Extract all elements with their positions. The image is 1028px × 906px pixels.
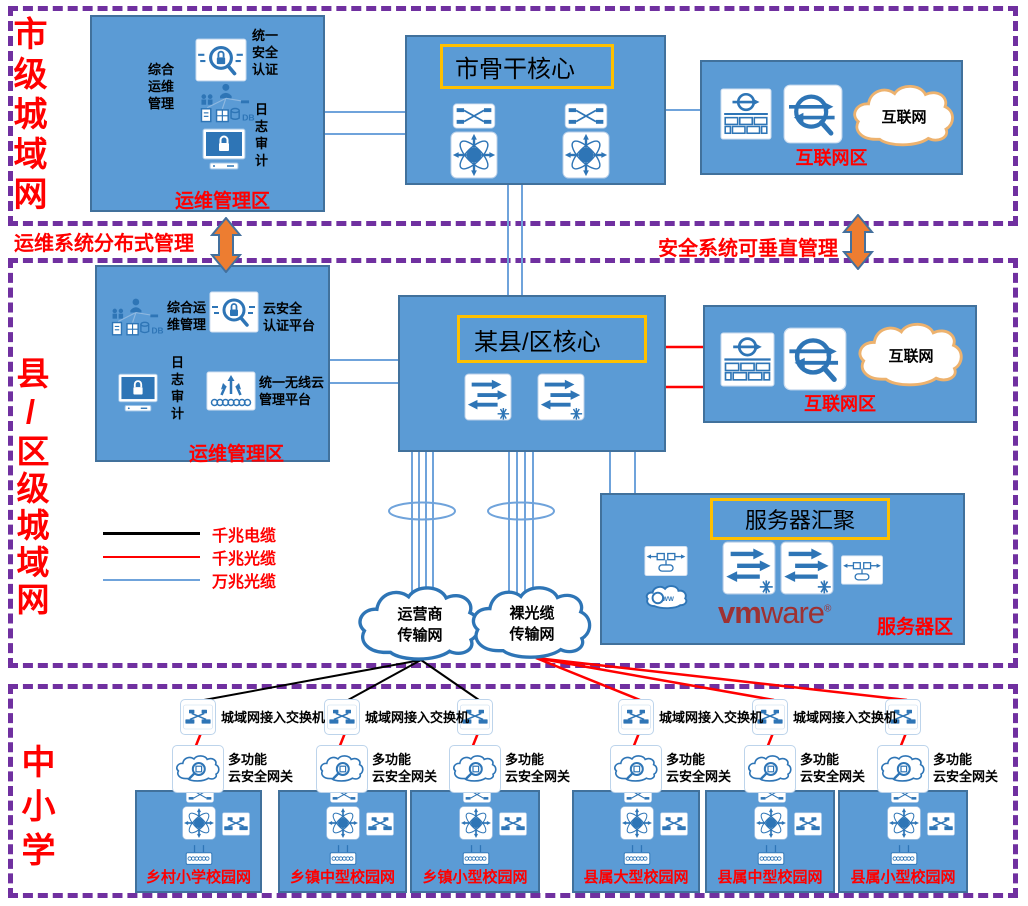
firewall-icon <box>720 332 775 387</box>
ops-mgmt-label: 综合 运维 管理 <box>148 62 174 113</box>
load-balancer-icon <box>644 545 688 577</box>
city-core-box: 市骨干核心 <box>405 35 666 185</box>
cloud-security-gateway-icon <box>744 745 796 793</box>
load-balancer-icon <box>840 555 884 585</box>
campus-router-icon <box>753 806 789 840</box>
campus-box: 县属小型校园网 <box>838 790 968 893</box>
gateway-icon <box>783 327 847 391</box>
city-ops-zone: 统一 安全 认证 综合 运维 管理 日 志 审 计 运维管理区 <box>90 15 325 212</box>
campus-name: 县属大型校园网 <box>574 866 698 887</box>
gateway-label: 多功能 云安全网关 <box>933 752 998 786</box>
city-internet-zone: 互联网 互联网区 <box>700 60 963 175</box>
l3-switch-icon <box>464 372 512 422</box>
campus-router-icon <box>325 806 361 840</box>
man-access-switch-icon <box>618 699 654 735</box>
man-access-switch-icon <box>180 699 216 735</box>
county-core-title: 某县/区核心 <box>457 315 647 363</box>
campus-router-icon <box>181 806 217 840</box>
man-access-switch-icon <box>324 699 360 735</box>
section-label-county: 县/区级城域网 <box>14 356 47 619</box>
server-zone: 服务器汇聚 vmware® 服务器区 <box>600 493 965 645</box>
www-cloud-icon <box>642 579 690 615</box>
internet-cloud-label: 互联网 <box>853 315 969 395</box>
legend-row: 千兆电缆 <box>103 522 276 545</box>
access-switch-label: 城域网接入交换机 <box>659 710 763 727</box>
internet-cloud: 互联网 <box>853 315 969 395</box>
campus-switch-icon <box>222 812 250 836</box>
vertical-arrow-icon <box>210 217 242 273</box>
vmware-logo-bold: vm <box>718 595 761 630</box>
gateway-label: 多功能 云安全网关 <box>228 752 293 786</box>
cloud-security-gateway-icon <box>172 745 224 793</box>
campus-name: 乡村小学校园网 <box>137 866 260 887</box>
gateway-label: 多功能 云安全网关 <box>372 752 437 786</box>
log-audit-label: 日 志 审 计 <box>255 102 268 170</box>
internet-cloud: 互联网 <box>848 78 960 154</box>
campus-switch-icon <box>366 812 394 836</box>
bare-fiber-network-label: 裸光缆 传输网 <box>464 582 600 664</box>
core-router-icon <box>449 131 499 179</box>
switch-icon <box>563 103 609 129</box>
vmware-logo-reg: ® <box>824 604 830 615</box>
cloud-security-gateway-icon <box>449 745 501 793</box>
legend-label: 千兆光缆 <box>212 545 276 569</box>
county-ops-zone: 综合运 维管理 云安全 认证平台 日 志 审 计 统一无线云 管理平台 运维管理… <box>95 265 330 462</box>
campus-box: 乡镇中型校园网 <box>278 790 407 893</box>
campus-name: 乡镇中型校园网 <box>280 866 405 887</box>
access-switch-label: 城域网接入交换机 <box>365 710 469 727</box>
campus-switch-icon <box>927 812 955 836</box>
core-router-icon <box>561 131 611 179</box>
server-zone-label: 服务器区 <box>877 612 953 639</box>
legend-line-10gig-fiber <box>103 579 200 581</box>
ops-database-icon <box>198 82 256 124</box>
cloud-security-gateway-icon <box>877 745 929 793</box>
legend-line-gig-fiber <box>103 556 200 558</box>
campus-name: 乡镇小型校园网 <box>412 866 538 887</box>
vertical-arrow-icon <box>842 214 874 270</box>
wireless-platform-label: 统一无线云 管理平台 <box>259 375 324 409</box>
cloud-auth-platform-label: 云安全 认证平台 <box>263 301 315 335</box>
internet-cloud-label: 互联网 <box>848 78 960 154</box>
firewall-icon <box>720 88 772 140</box>
campus-router-icon <box>886 806 922 840</box>
gateway-icon <box>782 84 844 144</box>
gateway-label: 多功能 云安全网关 <box>800 752 865 786</box>
ops-database-icon <box>109 297 165 337</box>
section-label-city: 市级城域网 <box>10 16 44 216</box>
campus-name: 县属小型校园网 <box>840 866 966 887</box>
bare-fiber-network-cloud: 裸光缆 传输网 <box>464 582 600 664</box>
l3-switch-icon <box>537 372 585 422</box>
log-audit-label: 日 志 审 计 <box>171 355 184 423</box>
legend-label: 万兆光缆 <box>212 568 276 592</box>
county-core-box: 某县/区核心 <box>398 295 666 452</box>
campus-box: 县属中型校园网 <box>705 790 835 893</box>
vmware-logo-light: ware <box>761 595 824 630</box>
banner-security-vertical: 安全系统可垂直管理 <box>658 232 838 261</box>
access-switch-label: 城域网接入交换机 <box>793 710 897 727</box>
section-label-schools: 中小学 <box>18 744 52 876</box>
gateway-label: 多功能 云安全网关 <box>505 752 570 786</box>
server-agg-title: 服务器汇聚 <box>710 498 890 540</box>
county-ops-zone-label: 运维管理区 <box>189 439 284 466</box>
city-core-title: 市骨干核心 <box>440 44 614 89</box>
unified-security-auth-label: 统一 安全 认证 <box>252 28 278 79</box>
access-switch-label: 城域网接入交换机 <box>221 710 325 727</box>
l3-switch-icon <box>722 541 776 595</box>
banner-ops-distributed: 运维系统分布式管理 <box>14 227 194 256</box>
legend: 千兆电缆 千兆光缆 万兆光缆 <box>103 522 276 591</box>
gateway-label: 多功能 云安全网关 <box>666 752 731 786</box>
cloud-security-gateway-icon <box>610 745 662 793</box>
l3-switch-icon <box>780 541 834 595</box>
campus-switch-icon <box>794 812 822 836</box>
campus-box: 乡村小学校园网 <box>135 790 262 893</box>
campus-router-icon <box>458 806 494 840</box>
log-audit-monitor-icon <box>199 128 249 173</box>
campus-box: 县属大型校园网 <box>572 790 700 893</box>
campus-name: 县属中型校园网 <box>707 866 833 887</box>
network-architecture-diagram: DB <box>0 0 1028 906</box>
log-audit-monitor-icon <box>115 373 161 415</box>
cloud-security-gateway-icon <box>316 745 368 793</box>
campus-box: 乡镇小型校园网 <box>410 790 540 893</box>
legend-line-copper <box>103 532 200 535</box>
campus-router-icon <box>619 806 655 840</box>
ops-mgmt-label: 综合运 维管理 <box>167 300 206 334</box>
legend-row: 千兆光缆 <box>103 545 276 568</box>
city-ops-zone-label: 运维管理区 <box>175 186 270 213</box>
legend-label: 千兆电缆 <box>212 522 276 546</box>
vmware-logo: vmware® <box>718 595 830 631</box>
county-internet-zone: 互联网 互联网区 <box>703 305 977 423</box>
switch-icon <box>451 103 497 129</box>
security-auth-icon <box>195 38 247 82</box>
cloud-security-auth-icon <box>209 291 259 333</box>
wireless-cloud-mgmt-icon <box>204 371 258 411</box>
campus-switch-icon <box>660 812 688 836</box>
campus-switch-icon <box>499 812 527 836</box>
legend-row: 万兆光缆 <box>103 568 276 591</box>
